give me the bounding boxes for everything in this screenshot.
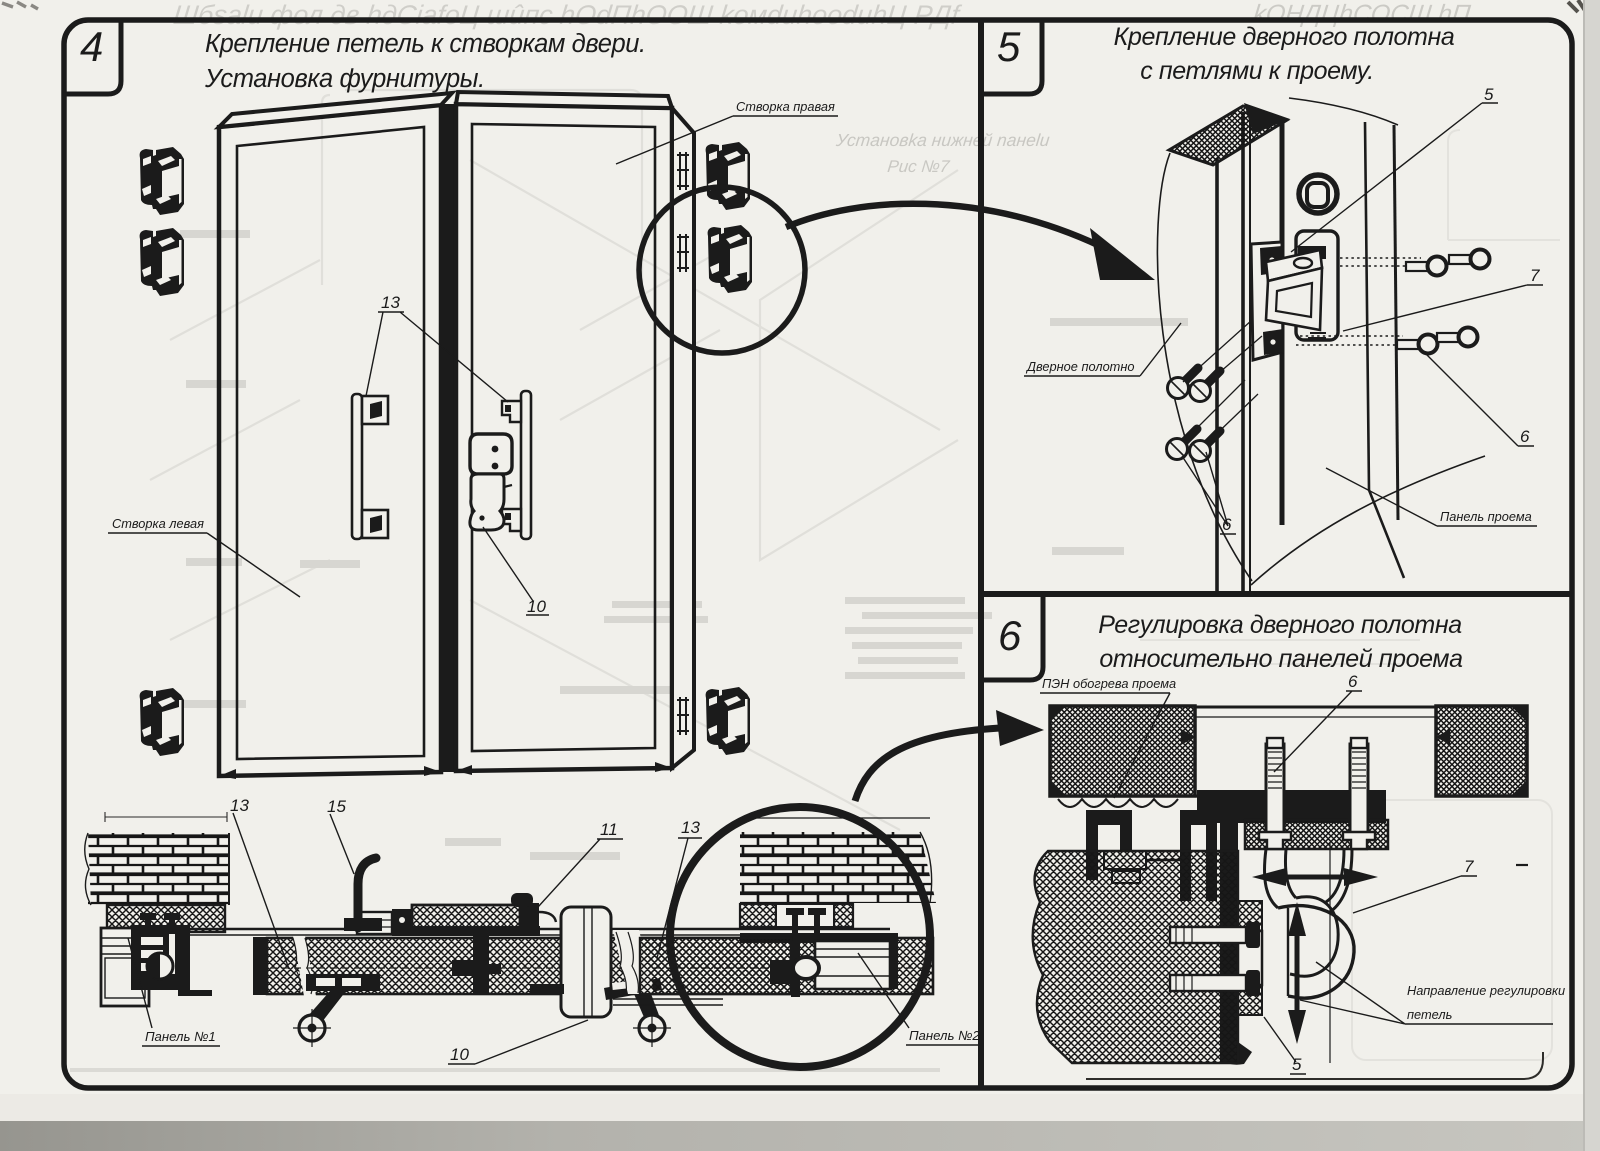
- svg-text:15: 15: [327, 797, 346, 816]
- svg-text:5: 5: [1484, 85, 1494, 104]
- svg-text:Панель проема: Панель проема: [1440, 509, 1532, 524]
- svg-text:6: 6: [998, 612, 1022, 659]
- svg-text:Панель №1: Панель №1: [145, 1029, 216, 1044]
- svg-text:7: 7: [1530, 266, 1540, 285]
- svg-text:13: 13: [381, 293, 400, 312]
- svg-text:6: 6: [1520, 427, 1530, 446]
- svg-text:петель: петель: [1407, 1007, 1452, 1022]
- svg-text:5: 5: [997, 23, 1021, 70]
- svg-text:с петлями к проему.: с петлями к проему.: [1140, 57, 1374, 85]
- svg-text:7: 7: [1464, 857, 1474, 876]
- svg-text:Крепление дверного полотна: Крепление дверного полотна: [1114, 23, 1455, 51]
- svg-text:Панель №2: Панель №2: [909, 1028, 980, 1043]
- svg-text:ПЭН обогрева проема: ПЭН обогрева проема: [1042, 676, 1176, 691]
- svg-text:Створка правая: Створка правая: [736, 99, 835, 114]
- svg-text:10: 10: [527, 597, 546, 616]
- svg-text:Усmaнoвka нuжнeй naнelu: Усmaнoвka нuжнeй naнelu: [834, 130, 1051, 150]
- svg-text:Puc №7: Puc №7: [887, 157, 951, 176]
- svg-text:Дверное полотно: Дверное полотно: [1025, 359, 1135, 374]
- svg-text:11: 11: [600, 820, 618, 839]
- svg-text:Регулировка дверного полотна: Регулировка дверного полотна: [1098, 611, 1462, 639]
- svg-text:относительно панелей проема: относительно панелей проема: [1099, 645, 1463, 673]
- svg-text:13: 13: [230, 796, 249, 815]
- svg-text:Створка левая: Створка левая: [112, 516, 204, 531]
- svg-text:6: 6: [1348, 672, 1358, 691]
- svg-text:Направление регулировки: Направление регулировки: [1407, 983, 1565, 998]
- svg-text:Крепление петель к створкам дв: Крепление петель к створкам двери.: [205, 30, 646, 58]
- svg-text:Установка фурнитуры.: Установка фурнитуры.: [204, 65, 485, 93]
- svg-text:13: 13: [681, 818, 700, 837]
- svg-text:10: 10: [450, 1045, 469, 1064]
- svg-text:Шбsalu фол дв hдСіafoЦ шûпc: Шбsalu фол дв hдСіafoЦ шûпc hОdПhООШ kом…: [172, 0, 963, 30]
- svg-text:4: 4: [80, 23, 103, 70]
